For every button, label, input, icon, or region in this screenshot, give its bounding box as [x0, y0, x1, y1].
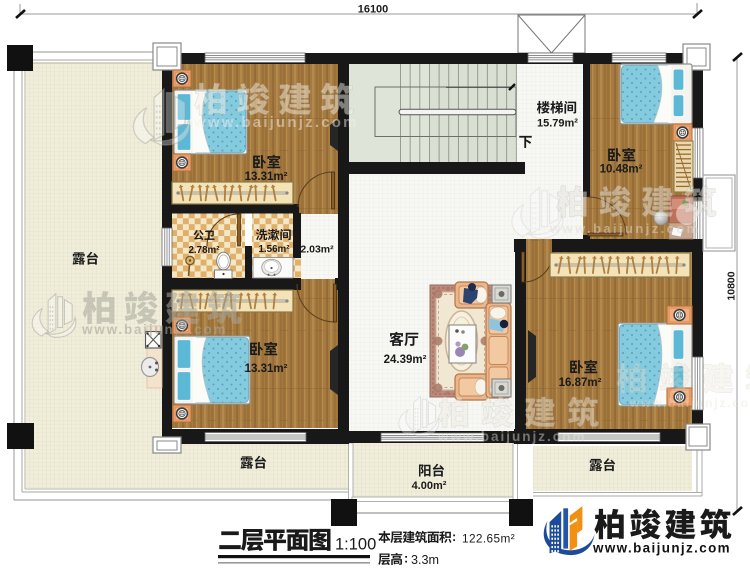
svg-text:www.baijunjz.com: www.baijunjz.com — [549, 221, 701, 236]
svg-text:4.00m²: 4.00m² — [412, 480, 447, 492]
svg-text::: : — [404, 551, 408, 566]
svg-text:www.baijunjz.com: www.baijunjz.com — [592, 541, 731, 556]
svg-text::: : — [452, 529, 456, 544]
svg-text:www.baijunjz.com: www.baijunjz.com — [629, 396, 750, 410]
svg-text:1:100: 1:100 — [335, 536, 376, 554]
svg-text:1.56m²: 1.56m² — [258, 244, 290, 255]
svg-text:10.48m²: 10.48m² — [600, 164, 643, 176]
svg-text:13.31m²: 13.31m² — [245, 171, 288, 183]
svg-text:www.baijunjz.com: www.baijunjz.com — [437, 429, 587, 444]
svg-text:13.31m²: 13.31m² — [245, 363, 288, 375]
svg-text:24.39m²: 24.39m² — [384, 354, 427, 366]
svg-text:122.65m²: 122.65m² — [462, 532, 515, 546]
svg-text:3.3m: 3.3m — [411, 553, 439, 567]
svg-text:www.baijunjz.com: www.baijunjz.com — [193, 114, 359, 131]
svg-text:16100: 16100 — [358, 4, 389, 16]
svg-text:www.baijunjz.com: www.baijunjz.com — [81, 322, 227, 337]
svg-text:2.03m²: 2.03m² — [300, 244, 334, 256]
svg-text:10800: 10800 — [726, 271, 738, 300]
svg-text:2.78m²: 2.78m² — [188, 245, 220, 256]
svg-text:15.79m²: 15.79m² — [537, 118, 578, 130]
svg-text:16.87m²: 16.87m² — [559, 377, 602, 389]
